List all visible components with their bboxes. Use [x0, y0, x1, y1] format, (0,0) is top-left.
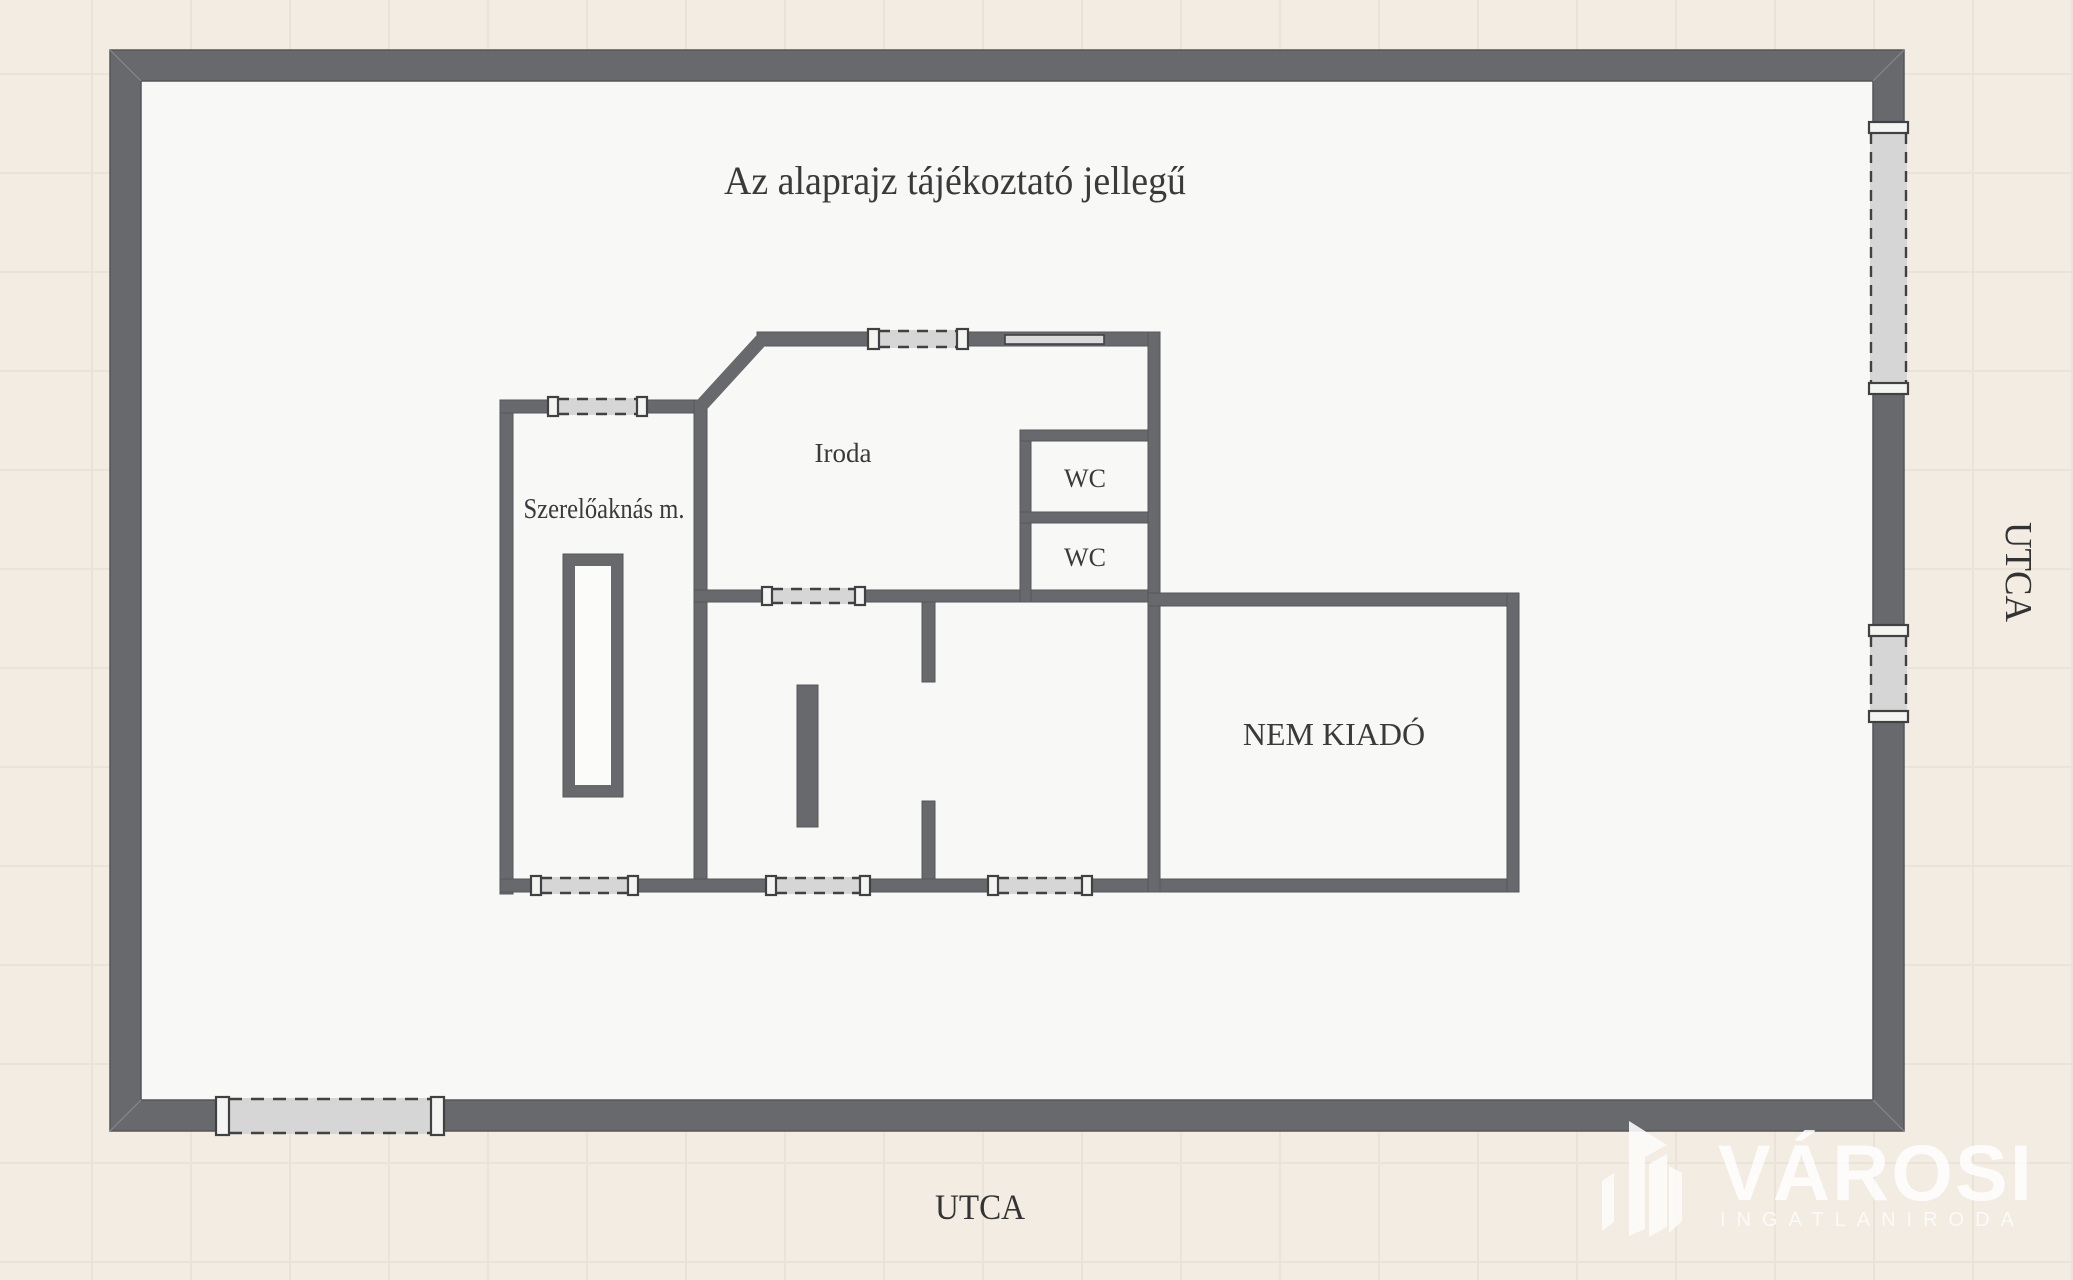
svg-text:Iroda: Iroda	[815, 438, 872, 468]
svg-text:UTCA: UTCA	[1997, 522, 2039, 623]
svg-text:UTCA: UTCA	[935, 1187, 1025, 1227]
svg-text:Az alaprajz tájékoztató jelleg: Az alaprajz tájékoztató jellegű	[724, 158, 1186, 203]
svg-text:Szerelőaknás m.: Szerelőaknás m.	[524, 494, 685, 525]
svg-text:VÁROSI: VÁROSI	[1718, 1128, 2034, 1217]
svg-text:INGATLANIRODA: INGATLANIRODA	[1720, 1209, 2025, 1231]
svg-text:NEM KIADÓ: NEM KIADÓ	[1243, 716, 1425, 752]
svg-text:WC: WC	[1064, 543, 1106, 572]
svg-text:WC: WC	[1064, 464, 1106, 493]
